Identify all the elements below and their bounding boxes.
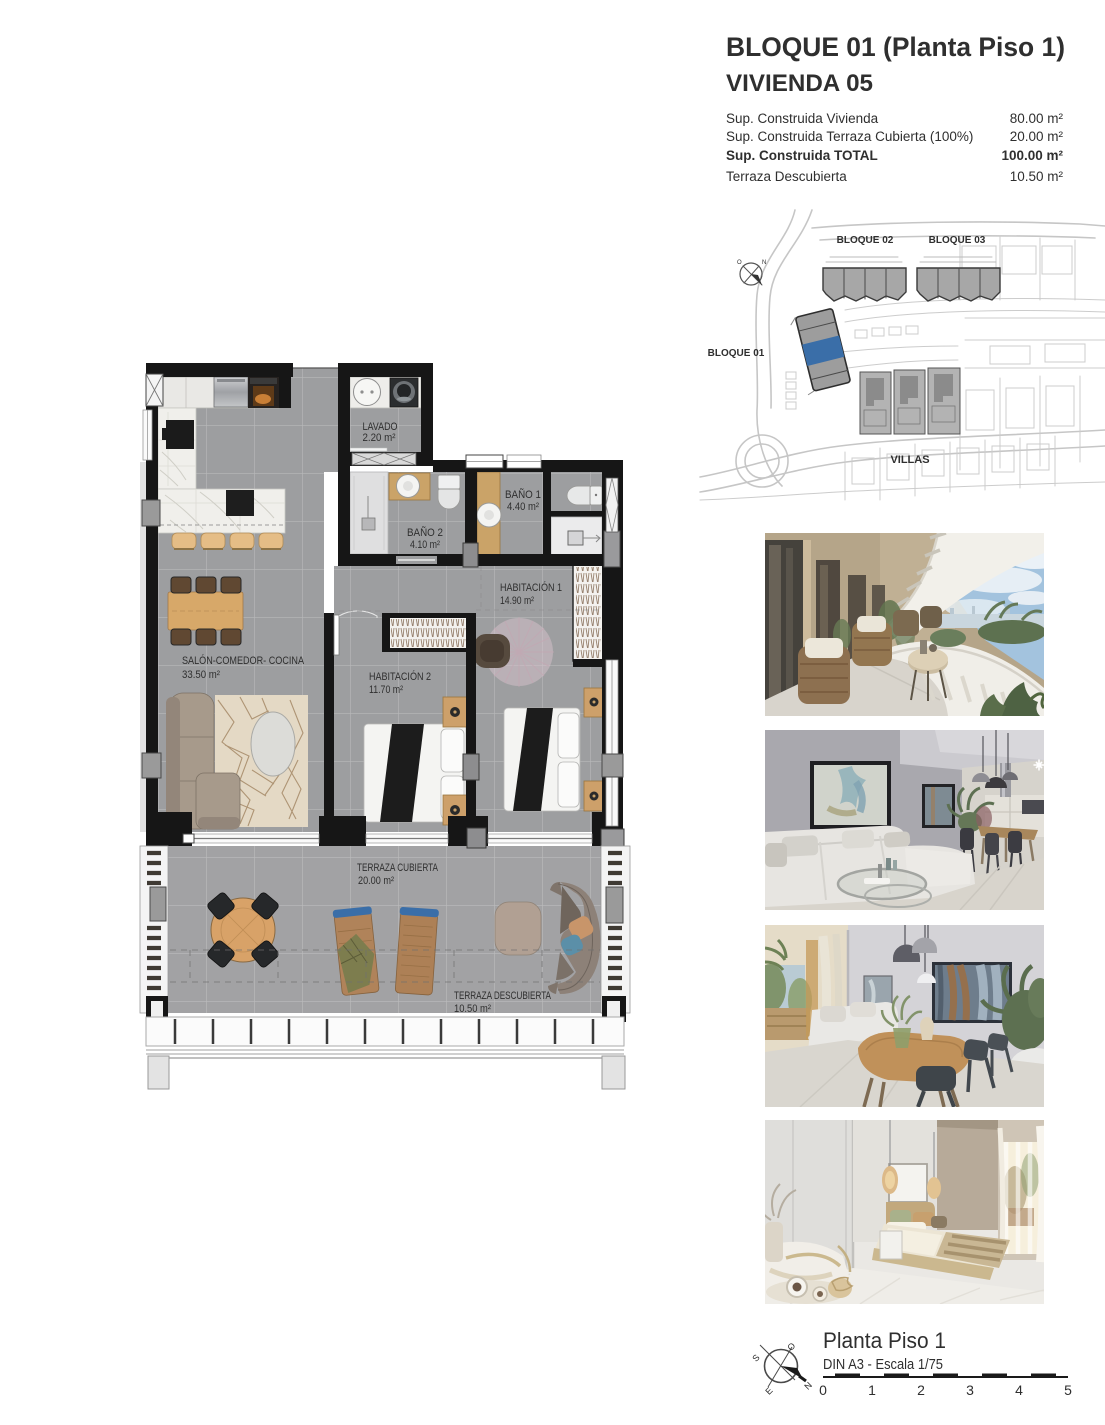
svg-text:SALÓN-COMEDOR- COCINA: SALÓN-COMEDOR- COCINA (182, 654, 305, 667)
svg-text:20.00 m²: 20.00 m² (1010, 129, 1064, 144)
svg-text:O: O (737, 260, 742, 266)
svg-text:11.70 m²: 11.70 m² (369, 684, 403, 696)
svg-text:BLOQUE 01 (Planta Piso 1): BLOQUE 01 (Planta Piso 1) (726, 32, 1065, 62)
svg-text:Planta Piso 1: Planta Piso 1 (823, 1328, 946, 1353)
svg-text:Sup. Construida Vivienda: Sup. Construida Vivienda (726, 111, 879, 126)
svg-text:Terraza Descubierta: Terraza Descubierta (726, 169, 847, 184)
svg-text:Sup. Construida TOTAL: Sup. Construida TOTAL (726, 148, 878, 163)
svg-text:BAÑO 2: BAÑO 2 (407, 526, 443, 539)
svg-text:N: N (762, 260, 766, 266)
svg-text:80.00 m²: 80.00 m² (1010, 111, 1064, 126)
svg-text:0: 0 (819, 1382, 827, 1398)
svg-text:2: 2 (917, 1382, 925, 1398)
svg-text:TERRAZA CUBIERTA: TERRAZA CUBIERTA (357, 862, 438, 874)
svg-text:BLOQUE 01: BLOQUE 01 (708, 348, 765, 359)
svg-text:100.00 m²: 100.00 m² (1001, 148, 1063, 163)
svg-text:Sup. Construida Terraza Cubier: Sup. Construida Terraza Cubierta (100%) (726, 129, 973, 144)
svg-text:HABITACIÓN 2: HABITACIÓN 2 (369, 670, 431, 683)
svg-text:VILLAS: VILLAS (890, 454, 929, 466)
svg-text:33.50 m²: 33.50 m² (182, 669, 220, 681)
svg-text:4: 4 (1015, 1382, 1023, 1398)
svg-text:3: 3 (966, 1382, 974, 1398)
svg-text:1: 1 (868, 1382, 876, 1398)
svg-text:HABITACIÓN 1: HABITACIÓN 1 (500, 581, 562, 594)
svg-text:20.00 m²: 20.00 m² (358, 875, 394, 887)
svg-text:10.50 m²: 10.50 m² (454, 1003, 491, 1015)
svg-text:VIVIENDA 05: VIVIENDA 05 (726, 70, 873, 97)
svg-text:10.50 m²: 10.50 m² (1010, 169, 1064, 184)
svg-text:4.10 m²: 4.10 m² (410, 539, 440, 551)
svg-text:2.20 m²: 2.20 m² (363, 432, 396, 444)
svg-text:DIN A3 - Escala 1/75: DIN A3 - Escala 1/75 (823, 1356, 943, 1373)
svg-text:BLOQUE 03: BLOQUE 03 (929, 235, 986, 246)
svg-text:4.40 m²: 4.40 m² (507, 501, 539, 513)
svg-text:BAÑO 1: BAÑO 1 (505, 488, 541, 501)
svg-text:TERRAZA DESCUBIERTA: TERRAZA DESCUBIERTA (454, 990, 551, 1002)
svg-text:BLOQUE 02: BLOQUE 02 (837, 235, 894, 246)
svg-text:14.90 m²: 14.90 m² (500, 595, 534, 607)
svg-text:5: 5 (1064, 1382, 1072, 1398)
